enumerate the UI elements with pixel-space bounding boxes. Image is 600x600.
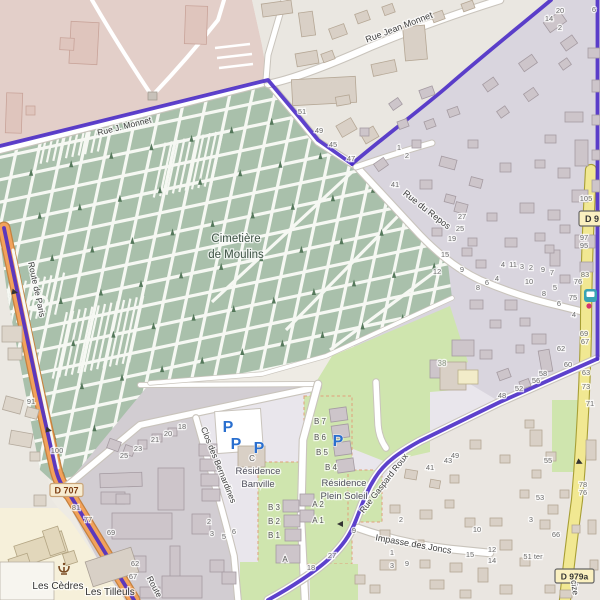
svg-text:4: 4 — [501, 260, 505, 269]
svg-text:8: 8 — [476, 283, 480, 292]
svg-text:27: 27 — [458, 212, 466, 221]
svg-text:25: 25 — [120, 451, 128, 460]
svg-text:18: 18 — [307, 563, 315, 572]
svg-text:P: P — [333, 433, 344, 450]
svg-text:45: 45 — [329, 140, 337, 149]
svg-text:75: 75 — [569, 293, 577, 302]
svg-text:10: 10 — [473, 525, 481, 534]
svg-text:6: 6 — [232, 527, 236, 536]
svg-text:51: 51 — [298, 107, 306, 116]
svg-text:cize: cize — [569, 579, 581, 596]
svg-text:D 707: D 707 — [54, 486, 78, 496]
svg-text:1: 1 — [397, 143, 401, 152]
svg-text:14: 14 — [488, 556, 496, 565]
svg-text:77: 77 — [84, 515, 92, 524]
svg-text:63: 63 — [582, 368, 590, 377]
svg-text:B 7: B 7 — [314, 417, 327, 426]
svg-text:56: 56 — [532, 376, 540, 385]
svg-text:8: 8 — [542, 289, 546, 298]
svg-text:95: 95 — [580, 241, 588, 250]
svg-text:de Moulins: de Moulins — [208, 249, 264, 261]
svg-text:Résidence: Résidence — [322, 478, 367, 489]
svg-text:62: 62 — [557, 344, 565, 353]
svg-text:A 2: A 2 — [312, 500, 324, 509]
svg-text:41: 41 — [391, 180, 399, 189]
svg-text:73: 73 — [582, 382, 590, 391]
svg-text:9: 9 — [405, 559, 409, 568]
svg-text:Banville: Banville — [241, 479, 274, 490]
svg-text:14: 14 — [545, 14, 553, 23]
svg-text:B 3: B 3 — [268, 503, 281, 512]
svg-text:55: 55 — [544, 456, 552, 465]
svg-text:25: 25 — [456, 224, 464, 233]
svg-text:Les Cèdres: Les Cèdres — [32, 581, 83, 592]
svg-text:38: 38 — [438, 359, 447, 368]
svg-text:P: P — [254, 440, 265, 457]
svg-text:6: 6 — [485, 278, 489, 287]
svg-text:12: 12 — [433, 267, 441, 276]
svg-text:6: 6 — [557, 299, 561, 308]
svg-text:71: 71 — [586, 399, 594, 408]
svg-text:A 1: A 1 — [312, 516, 324, 525]
svg-text:52: 52 — [515, 384, 523, 393]
svg-text:2: 2 — [558, 23, 562, 32]
svg-text:41: 41 — [426, 463, 434, 472]
svg-text:B 6: B 6 — [314, 433, 327, 442]
svg-text:3: 3 — [210, 529, 214, 538]
svg-text:81: 81 — [72, 503, 80, 512]
svg-text:1: 1 — [390, 548, 394, 557]
svg-text:91: 91 — [27, 397, 35, 406]
svg-text:7: 7 — [550, 268, 554, 277]
svg-text:11: 11 — [509, 260, 517, 269]
svg-text:B 5: B 5 — [316, 448, 329, 457]
svg-text:53: 53 — [536, 493, 544, 502]
svg-text:P: P — [223, 419, 234, 436]
svg-text:20: 20 — [556, 6, 564, 15]
svg-text:2: 2 — [207, 517, 211, 526]
svg-text:100: 100 — [51, 446, 64, 455]
svg-text:43: 43 — [444, 456, 452, 465]
svg-text:10: 10 — [525, 277, 533, 286]
svg-text:5: 5 — [553, 283, 557, 292]
svg-text:18: 18 — [178, 422, 186, 431]
svg-text:B 1: B 1 — [268, 531, 281, 540]
svg-text:4: 4 — [572, 310, 576, 319]
svg-text:B 2: B 2 — [268, 517, 281, 526]
svg-text:B 4: B 4 — [325, 463, 338, 472]
svg-text:Les Tilleuls: Les Tilleuls — [85, 587, 134, 598]
svg-text:3: 3 — [390, 561, 394, 570]
svg-text:2: 2 — [405, 151, 409, 160]
svg-text:47: 47 — [347, 154, 355, 163]
svg-text:27: 27 — [328, 551, 336, 560]
svg-text:51 ter: 51 ter — [523, 552, 543, 561]
svg-text:Plein Soleil: Plein Soleil — [321, 491, 368, 502]
svg-text:12: 12 — [488, 545, 496, 554]
svg-text:48: 48 — [498, 391, 506, 400]
svg-text:62: 62 — [131, 559, 139, 568]
svg-text:15: 15 — [441, 250, 449, 259]
svg-text:P: P — [231, 436, 242, 453]
svg-text:3: 3 — [529, 515, 533, 524]
svg-text:20: 20 — [164, 429, 172, 438]
svg-text:6: 6 — [592, 5, 596, 14]
svg-text:67: 67 — [129, 572, 137, 581]
svg-text:9: 9 — [541, 265, 545, 274]
svg-text:15: 15 — [466, 550, 474, 559]
svg-text:66: 66 — [552, 530, 560, 539]
svg-text:105: 105 — [580, 194, 593, 203]
svg-text:Cimetière: Cimetière — [211, 233, 260, 245]
svg-text:3: 3 — [520, 262, 524, 271]
svg-text:60: 60 — [564, 360, 572, 369]
svg-text:23: 23 — [134, 444, 142, 453]
svg-text:19: 19 — [448, 234, 456, 243]
svg-text:2: 2 — [529, 263, 533, 272]
svg-text:Résidence: Résidence — [236, 466, 281, 477]
svg-text:21: 21 — [151, 435, 159, 444]
svg-text:A: A — [282, 555, 288, 564]
svg-text:D 9: D 9 — [585, 214, 599, 224]
svg-text:76: 76 — [574, 277, 582, 286]
svg-text:9: 9 — [352, 526, 356, 535]
svg-text:5: 5 — [222, 532, 226, 541]
svg-text:67: 67 — [581, 337, 589, 346]
svg-text:76: 76 — [579, 488, 587, 497]
svg-text:69: 69 — [107, 528, 115, 537]
svg-text:49: 49 — [315, 126, 323, 135]
svg-text:4: 4 — [495, 274, 499, 283]
svg-text:C: C — [249, 454, 255, 463]
svg-text:9: 9 — [460, 265, 464, 274]
svg-text:2: 2 — [399, 515, 403, 524]
